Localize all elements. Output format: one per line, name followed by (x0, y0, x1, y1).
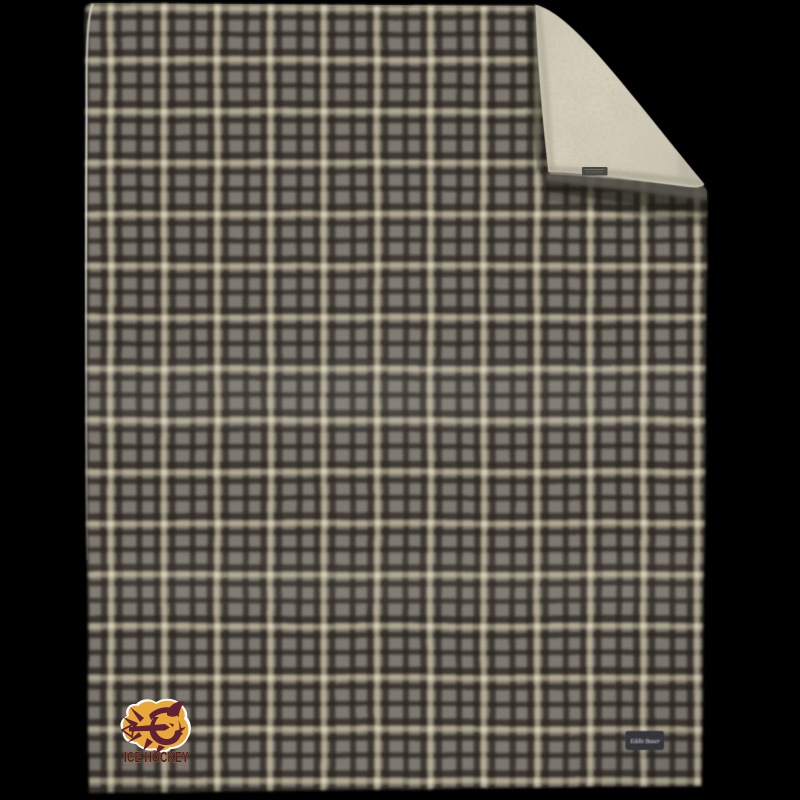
svg-text:Eddie Bauer: Eddie Bauer (629, 738, 660, 745)
svg-text:ICE HOCKEY: ICE HOCKEY (124, 749, 189, 765)
